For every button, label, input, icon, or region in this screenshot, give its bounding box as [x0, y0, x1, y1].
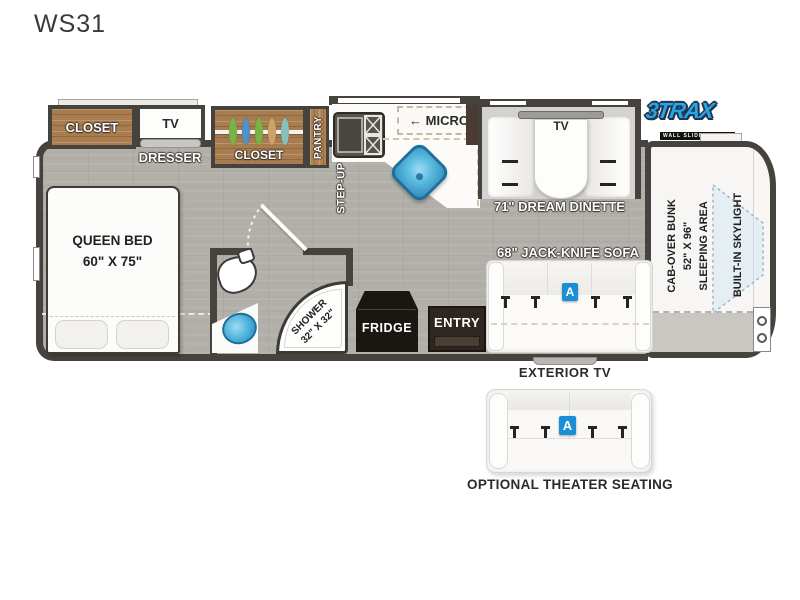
cupholder-pin — [513, 426, 516, 438]
theater-option-badge: A — [559, 416, 576, 435]
seatbelt-mark — [502, 183, 518, 186]
seatbelt-mark — [600, 183, 616, 186]
seatbelt-mark — [502, 160, 518, 163]
window — [33, 247, 40, 281]
page-title: WS31 — [34, 10, 106, 39]
sofa-armrest — [488, 262, 504, 351]
sofa-option-badge: A — [562, 283, 578, 301]
theater-badge-text: A — [563, 418, 572, 433]
pillow — [55, 320, 108, 349]
bed-label-line2: 60" X 75" — [72, 252, 152, 273]
skylight-text: BUILT-IN SKYLIGHT — [732, 193, 744, 297]
hanger-icon — [268, 118, 276, 145]
sofa-armrest — [635, 262, 651, 351]
skylight-label: BUILT-IN SKYLIGHT — [677, 238, 799, 252]
sofa-label-text: 68" JACK-KNIFE SOFA — [497, 245, 639, 260]
sofa-badge-text: A — [566, 285, 575, 299]
cupholder-pin — [594, 296, 597, 308]
bed-fold-line — [50, 316, 175, 317]
theater-armrest — [631, 393, 650, 469]
theater-armrest — [489, 393, 508, 469]
pantry-label-text: PANTRY — [313, 116, 324, 159]
sofa-label: 68" JACK-KNIFE SOFA — [478, 244, 658, 260]
cupholder-pin — [544, 426, 547, 438]
dresser-label: DRESSER — [128, 149, 212, 165]
entry-label: ENTRY — [434, 315, 480, 330]
cab-console — [753, 307, 771, 352]
3trax-logo-text: 3TRAX — [644, 98, 737, 124]
bedroom-closet-label: CLOSET — [66, 120, 119, 135]
entry-step — [434, 336, 480, 347]
dinette-tv-bar — [518, 111, 604, 119]
step-up-text: STEP-UP — [336, 162, 348, 213]
theater-seat-line — [508, 438, 631, 439]
hanger-icon — [229, 118, 237, 145]
cupholder-icon — [757, 333, 767, 343]
window — [490, 101, 526, 105]
floorplan-canvas: WS31 3TRAX WALL SLIDE SYSTEM CLOSET TV D… — [0, 0, 800, 600]
fridge: FRIDGE — [356, 291, 418, 352]
stove-icon — [333, 112, 385, 158]
dinette-slideout: TV — [478, 99, 641, 199]
exterior-tv-label: EXTERIOR TV — [500, 364, 630, 380]
bedroom-closet: CLOSET — [48, 105, 136, 149]
cupholder-pin — [591, 426, 594, 438]
dinette-label-text: 71" DREAM DINETTE — [494, 199, 625, 214]
cupholder-icon — [757, 316, 767, 326]
sink-drain — [415, 172, 425, 182]
bed-label-line1: QUEEN BED — [72, 231, 152, 252]
bedroom-tv-label: TV — [162, 116, 179, 131]
cab-dashboard — [651, 313, 753, 352]
cupholder-pin — [504, 296, 507, 308]
dinette-label: 71" DREAM DINETTE — [478, 198, 641, 214]
step-up-label: STEP-UP — [306, 180, 378, 196]
theater-seating-label: OPTIONAL THEATER SEATING — [460, 476, 680, 492]
seatbelt-mark — [600, 160, 616, 163]
micro-label: MICRO — [426, 113, 469, 128]
exterior-tv-text: EXTERIOR TV — [519, 365, 611, 380]
window — [592, 101, 628, 105]
cupholder-pin — [621, 426, 624, 438]
cupholder-pin — [626, 296, 629, 308]
micro-arrow-icon: ← — [409, 113, 422, 128]
hanger-icon — [255, 118, 263, 145]
hanger-icon — [242, 118, 250, 145]
jack-knife-sofa: A — [486, 260, 653, 353]
dresser-top — [140, 139, 201, 148]
window — [33, 156, 40, 178]
cupholder-pin — [534, 296, 537, 308]
fridge-label: FRIDGE — [362, 321, 412, 335]
queen-bed: QUEEN BED 60" X 75" — [46, 186, 180, 354]
dresser-label-text: DRESSER — [139, 150, 202, 165]
pillow — [116, 320, 169, 349]
theater-seating-text: OPTIONAL THEATER SEATING — [467, 477, 673, 492]
wardrobe-closet-label: CLOSET — [235, 148, 284, 162]
dinette-tv-label: TV — [553, 119, 568, 133]
entry-door: ENTRY — [428, 306, 486, 352]
bedroom-tv-cabinet: TV — [136, 105, 205, 142]
theater-seating: A — [486, 389, 652, 473]
window — [338, 98, 460, 103]
slide-line — [491, 323, 649, 325]
